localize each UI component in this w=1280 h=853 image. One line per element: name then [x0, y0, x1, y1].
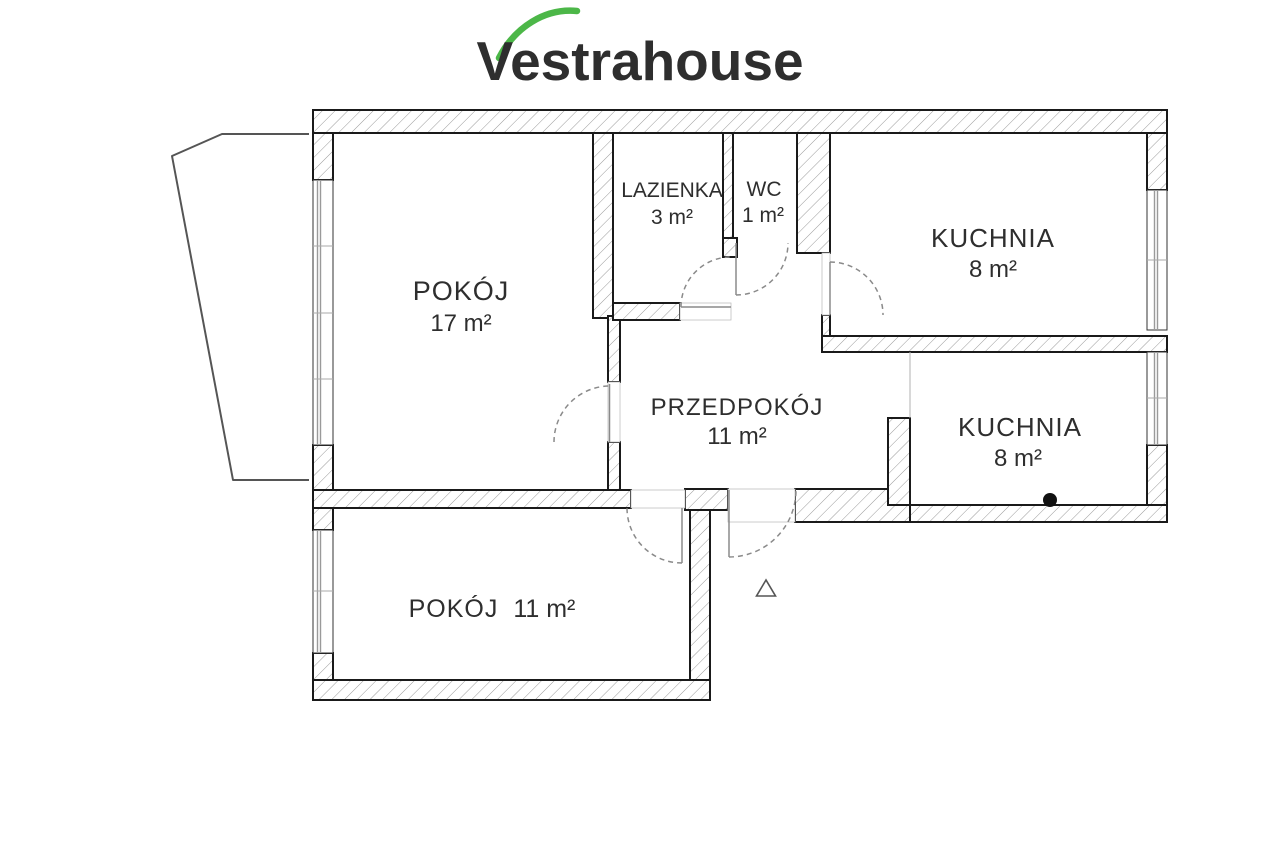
wall-pokoj17-lazienka [593, 133, 613, 318]
wall-pokoj17-hall-upper [608, 316, 620, 382]
wall-kuchnia-partition [822, 315, 830, 336]
room-area-lazienka: 3 m² [651, 206, 693, 229]
entrance-marker-icon [757, 580, 776, 596]
door-lazienka [681, 257, 731, 307]
room-area-wc: 1 m² [742, 204, 784, 227]
wall-lazienka-wc-stub [723, 238, 737, 257]
window-kuchnia-mid [1147, 352, 1167, 445]
gas-point-icon [1043, 493, 1057, 507]
door-kuchnia-top [830, 262, 883, 315]
balcony-outline [172, 134, 309, 480]
room-label-pokoj17: POKÓJ [413, 275, 510, 306]
room-label-przedpokoj: PRZEDPOKÓJ [651, 394, 824, 421]
room-area-przedpokoj: 11 m² [707, 423, 767, 450]
door-openings [608, 253, 830, 522]
wall-lazienka-bottom [613, 303, 680, 320]
wall-kuchnia-mid-bottom [910, 505, 1167, 522]
room-label-pokoj11-name: POKÓJ [409, 594, 499, 623]
floorplan-drawing: Vestrahouse [0, 0, 1280, 853]
room-label-pokoj11: POKÓJ 11 m² [409, 594, 576, 623]
wall-left-lower-block2 [313, 653, 333, 680]
logo-text: Vestrahouse [476, 30, 803, 92]
window-kuchnia-top [1147, 190, 1167, 330]
wall-divider-block [685, 489, 728, 510]
wall-left-top-block [313, 133, 333, 180]
room-label-wc: WC [747, 178, 782, 201]
wall-right-top-block [1147, 133, 1167, 190]
wall-pokoj11-bottom [313, 680, 710, 700]
logo: Vestrahouse [476, 11, 803, 92]
window-pokoj11 [313, 530, 333, 653]
door-wc [736, 243, 788, 295]
window-pokoj17 [313, 180, 333, 445]
wall-left-lower-block1 [313, 508, 333, 530]
door-pokoj11 [627, 508, 682, 563]
room-area-pokoj17: 17 m² [430, 310, 491, 337]
wall-pokoj11-right [690, 510, 710, 680]
room-label-kuchnia-mid: KUCHNIA [958, 412, 1082, 442]
wall-kuchnia-divider [822, 336, 1167, 352]
wall-wc-right [797, 133, 830, 253]
wall-divider-pokoje [313, 490, 631, 508]
room-label-kuchnia-top: KUCHNIA [931, 223, 1055, 253]
room-labels: POKÓJ 17 m² LAZIENKA 3 m² WC 1 m² KUCHNI… [409, 178, 1082, 623]
wall-pokoj17-hall-lower [608, 442, 620, 490]
door-pokoj17 [554, 384, 610, 442]
floorplan-page: Vestrahouse [0, 0, 1280, 853]
wall-top [313, 110, 1167, 133]
room-area-pokoj11: 11 m² [513, 595, 575, 623]
room-area-kuchnia-top: 8 m² [969, 256, 1017, 283]
room-label-lazienka: LAZIENKA [621, 179, 723, 202]
wall-lazienka-wc [723, 133, 733, 243]
room-area-kuchnia-mid: 8 m² [994, 445, 1042, 472]
wall-hall-stub [888, 418, 910, 505]
